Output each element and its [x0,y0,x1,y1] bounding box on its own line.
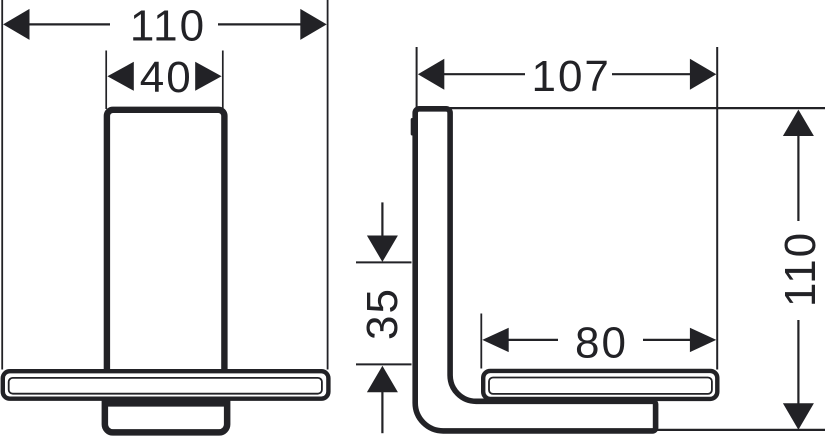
svg-text:35: 35 [358,287,407,340]
svg-text:107: 107 [531,52,610,101]
svg-text:110: 110 [130,1,206,50]
svg-text:40: 40 [140,53,193,102]
svg-text:110: 110 [776,231,825,307]
svg-text:80: 80 [575,318,628,367]
